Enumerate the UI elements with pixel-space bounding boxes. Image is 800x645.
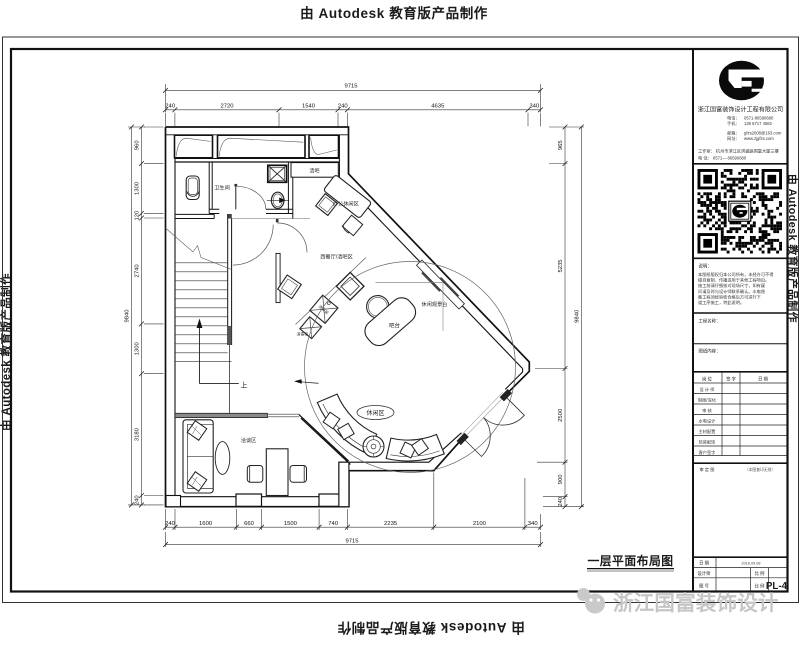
- svg-text:PL-4: PL-4: [766, 581, 788, 592]
- svg-text:（本图复印无效）: （本图复印无效）: [745, 467, 775, 472]
- svg-text:4635: 4635: [431, 104, 445, 110]
- svg-text:西餐厅/清吧区: 西餐厅/清吧区: [320, 253, 353, 261]
- svg-text:道工序施工，特此说明。: 道工序施工，特此说明。: [698, 299, 744, 306]
- svg-text:660: 660: [244, 521, 255, 527]
- svg-text:9715: 9715: [345, 538, 359, 544]
- svg-text:岗 位: 岗 位: [702, 376, 712, 382]
- svg-text:340: 340: [529, 104, 540, 110]
- svg-text:240: 240: [165, 104, 176, 110]
- svg-text:浙江国富装饰设计工程有限公司: 浙江国富装饰设计工程有限公司: [698, 106, 783, 114]
- svg-text:240: 240: [558, 496, 564, 507]
- svg-text:2100: 2100: [473, 521, 487, 527]
- svg-text:www.zjgfzs.com: www.zjgfzs.com: [744, 136, 774, 141]
- svg-text:上: 上: [241, 381, 248, 390]
- svg-text:手机：: 手机：: [727, 120, 740, 127]
- svg-text:2740: 2740: [135, 264, 141, 278]
- svg-text:软装配饰: 软装配饰: [699, 439, 716, 446]
- svg-text:卫生间: 卫生间: [214, 184, 230, 192]
- svg-text:消毒柜: 消毒柜: [297, 332, 309, 337]
- svg-text:客户签字: 客户签字: [699, 449, 716, 456]
- svg-text:120: 120: [135, 210, 141, 221]
- svg-text:浙江国富装饰设计: 浙江国富装饰设计: [613, 591, 779, 615]
- svg-text:2720: 2720: [220, 104, 234, 110]
- svg-text:比 例: 比 例: [755, 570, 765, 577]
- svg-text:9715: 9715: [344, 84, 358, 90]
- svg-text:设 计 师: 设 计 师: [700, 386, 715, 393]
- svg-text:5235: 5235: [558, 259, 564, 273]
- svg-text:比 例: 比 例: [755, 583, 765, 590]
- svg-text:3180: 3180: [135, 427, 141, 441]
- svg-text:240: 240: [338, 104, 349, 110]
- svg-text:审 核: 审 核: [702, 407, 712, 414]
- svg-text:2235: 2235: [384, 521, 398, 527]
- svg-text:240: 240: [165, 521, 176, 527]
- svg-text:电 话： 0571— 86590680: 电 话： 0571— 86590680: [698, 155, 747, 162]
- svg-text:1500: 1500: [284, 521, 298, 527]
- svg-text:一层平面布局图: 一层平面布局图: [587, 554, 673, 568]
- svg-text:1600: 1600: [199, 521, 213, 527]
- svg-text:740: 740: [328, 521, 339, 527]
- svg-text:网址：: 网址：: [727, 135, 740, 142]
- svg-text:休闲观景台: 休闲观景台: [422, 300, 448, 308]
- svg-text:设计师: 设计师: [698, 570, 712, 577]
- svg-text:休闲区: 休闲区: [366, 409, 384, 417]
- svg-text:由 Autodesk 教育版产品制作: 由 Autodesk 教育版产品制作: [337, 620, 525, 636]
- svg-text:由 Autodesk 教育版产品制作: 由 Autodesk 教育版产品制作: [300, 5, 488, 21]
- svg-text:0571-86590680: 0571-86590680: [744, 116, 774, 121]
- svg-text:9840: 9840: [574, 309, 580, 323]
- svg-text:主材配置: 主材配置: [699, 428, 716, 435]
- svg-text:9840: 9840: [125, 309, 131, 323]
- svg-text:965: 965: [558, 140, 564, 151]
- svg-text:1300: 1300: [135, 342, 141, 356]
- svg-text:240: 240: [135, 495, 141, 506]
- svg-text:清吧: 清吧: [309, 168, 319, 175]
- svg-text:138 6717 4582: 138 6717 4582: [744, 121, 773, 126]
- svg-text:洽谈区: 洽谈区: [241, 436, 257, 444]
- svg-text:签 字: 签 字: [726, 376, 736, 382]
- svg-text:2500: 2500: [558, 408, 564, 422]
- svg-text:340: 340: [528, 521, 539, 527]
- svg-text:1540: 1540: [302, 104, 316, 110]
- svg-text:1300: 1300: [135, 181, 141, 195]
- svg-text:水电设计: 水电设计: [699, 418, 716, 425]
- svg-text:工作室： 杭州市滨江区滨盛路国富大厦三樓: 工作室： 杭州市滨江区滨盛路国富大厦三樓: [698, 148, 779, 155]
- svg-text:gfzs2008@163.com: gfzs2008@163.com: [744, 131, 782, 136]
- svg-text:960: 960: [135, 140, 141, 151]
- svg-text:工程名称：: 工程名称：: [699, 318, 721, 325]
- svg-text:说明：: 说明：: [699, 263, 712, 270]
- svg-text:吧台: 吧台: [389, 322, 401, 330]
- svg-text:办公休闲区: 办公休闲区: [333, 199, 359, 207]
- svg-text:2016.05.08: 2016.05.08: [741, 562, 760, 566]
- svg-text:审 定 图: 审 定 图: [700, 466, 715, 473]
- svg-text:900: 900: [558, 474, 564, 485]
- svg-text:图纸内容：: 图纸内容：: [699, 348, 721, 355]
- svg-text:制图/深化: 制图/深化: [698, 397, 717, 404]
